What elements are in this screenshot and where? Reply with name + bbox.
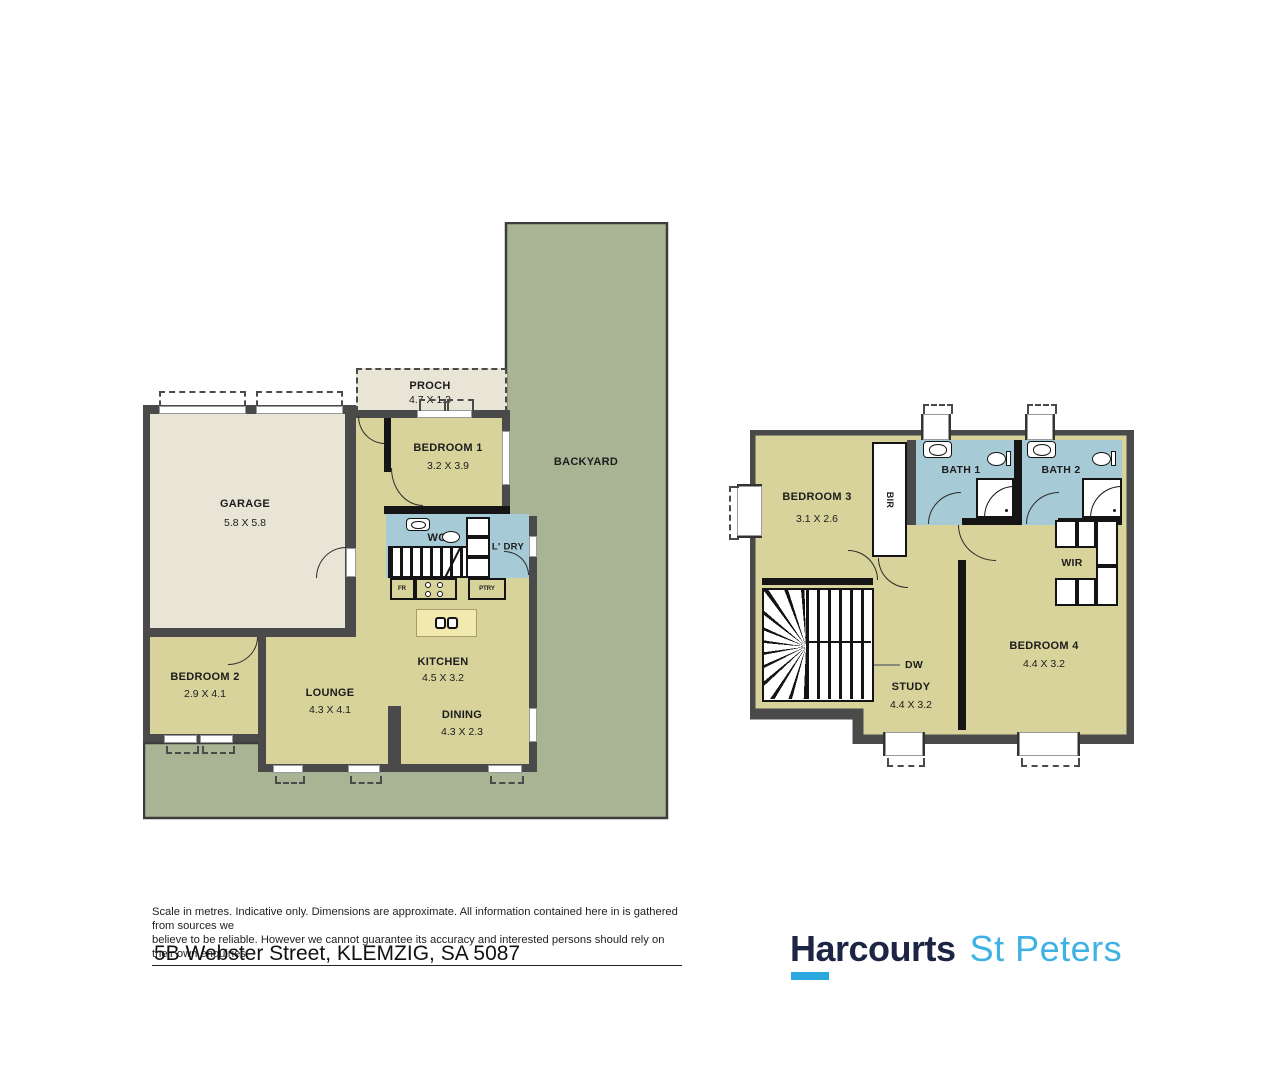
harcourts-logo: HarcourtsSt Peters	[790, 928, 1122, 982]
window-marker	[202, 746, 235, 754]
bir-label: BIR	[885, 492, 895, 508]
wardrobe-shelf	[1096, 520, 1118, 566]
window	[348, 765, 380, 773]
toilet-icon	[1092, 452, 1111, 466]
lounge-dims: 4.3 X 4.1	[309, 704, 351, 716]
basin-icon	[406, 518, 430, 531]
wall	[962, 518, 1022, 525]
wardrobe-shelf	[1077, 520, 1096, 548]
window-marker	[419, 399, 446, 411]
toilet-icon	[987, 452, 1006, 466]
disclaimer-line1: Scale in metres. Indicative only. Dimens…	[152, 905, 682, 933]
driveway-marker	[256, 391, 343, 406]
bath1-label: BATH 1	[942, 464, 981, 476]
window-marker	[275, 776, 305, 784]
staircase	[388, 546, 468, 578]
property-address: 5B Webster Street, KLEMZIG, SA 5087	[154, 942, 520, 966]
stair-treads	[806, 643, 871, 699]
backyard-label: BACKYARD	[554, 456, 618, 468]
window	[1017, 732, 1080, 756]
dw-label: DW	[905, 659, 923, 671]
bedroom4-label: BEDROOM 4	[1009, 640, 1078, 652]
window-marker	[1027, 404, 1057, 414]
window	[273, 765, 303, 773]
bath2-label: BATH 2	[1042, 464, 1081, 476]
wall	[388, 706, 401, 772]
lounge-label: LOUNGE	[306, 687, 355, 699]
logo-underline-bar	[791, 972, 829, 980]
bedroom3-label: BEDROOM 3	[782, 491, 851, 503]
shower-icon	[1082, 478, 1122, 518]
window-marker	[350, 776, 382, 784]
upper-floor-plan: BEDROOM 3 3.1 X 2.6 BIR BATH 1 BATH 2	[700, 380, 1160, 780]
window	[1025, 414, 1055, 440]
window-marker	[447, 399, 474, 411]
bedroom3-dims: 3.1 X 2.6	[796, 513, 838, 525]
stove-burner	[425, 591, 431, 597]
dining-label: DINING	[442, 709, 482, 721]
window	[883, 732, 925, 756]
toilet-tank	[1006, 451, 1011, 466]
dining-dims: 4.3 X 2.3	[441, 726, 483, 738]
wall	[384, 506, 510, 514]
window-marker	[490, 776, 524, 784]
stove-burner	[425, 582, 431, 588]
bedroom2-label: BEDROOM 2	[170, 671, 239, 683]
window	[488, 765, 522, 773]
study-label: STUDY	[892, 681, 931, 693]
garage-door-opening	[256, 406, 343, 414]
laundry-appliance-icon	[466, 537, 490, 557]
stair-treads	[806, 590, 871, 643]
kitchen-label: KITCHEN	[418, 656, 469, 668]
wall	[907, 440, 916, 525]
stove-burner	[437, 591, 443, 597]
stove-burner	[437, 582, 443, 588]
window	[737, 484, 762, 538]
porch-label: PROCH	[409, 380, 450, 392]
wardrobe-shelf	[1077, 578, 1096, 606]
garage-dims: 5.8 X 5.8	[224, 517, 266, 529]
brand-name: Harcourts	[790, 928, 956, 969]
bedroom1-label: BEDROOM 1	[413, 442, 482, 454]
window	[529, 708, 537, 742]
garage-internal-door	[346, 548, 356, 577]
garage-label: GARAGE	[220, 498, 270, 510]
basin-icon	[1027, 441, 1056, 458]
window-marker	[166, 746, 199, 754]
window	[417, 410, 472, 418]
bedroom2-dims: 2.9 X 4.1	[184, 688, 226, 700]
stair-winder-fan	[764, 590, 806, 699]
wall	[958, 560, 966, 730]
window	[921, 414, 951, 440]
laundry-appliance-icon	[466, 517, 490, 537]
window	[164, 735, 197, 743]
wardrobe-shelf	[1055, 578, 1077, 606]
staircase	[762, 588, 874, 702]
study-dims: 4.4 X 3.2	[890, 699, 932, 711]
floorplan-page: BACKYARD PROCH 4.7 X 1.3 GARAGE 5.8 X 5.…	[0, 0, 1268, 1080]
wir-label: WIR	[1061, 557, 1082, 569]
brand-office: St Peters	[970, 928, 1123, 969]
toilet-tank	[1111, 451, 1116, 466]
window	[502, 431, 510, 485]
bedroom1-dims: 3.2 X 3.9	[427, 460, 469, 472]
wardrobe-shelf	[1096, 566, 1118, 606]
window-marker	[729, 486, 739, 540]
sink-icon	[447, 617, 458, 629]
kitchen-dims: 4.5 X 3.2	[422, 672, 464, 684]
window-marker	[923, 404, 953, 414]
back-door-opening	[529, 536, 537, 557]
laundry-appliance-icon	[466, 557, 490, 578]
shower-icon	[976, 478, 1014, 518]
pantry-label: PTRY	[479, 586, 495, 592]
basin-icon	[923, 441, 952, 458]
window	[200, 735, 233, 743]
fridge-label: FR	[398, 586, 406, 592]
ground-floor-plan: BACKYARD PROCH 4.7 X 1.3 GARAGE 5.8 X 5.…	[0, 0, 700, 850]
stove-box	[415, 578, 457, 600]
toilet-icon	[442, 531, 460, 543]
bedroom4-dims: 4.4 X 3.2	[1023, 658, 1065, 670]
window-marker	[887, 758, 925, 767]
garage-door-opening	[159, 406, 246, 414]
wardrobe-shelf	[1055, 520, 1077, 548]
wall	[1014, 440, 1022, 525]
window-marker	[1021, 758, 1080, 767]
sink-icon	[435, 617, 446, 629]
wall	[384, 418, 391, 472]
driveway-marker	[159, 391, 246, 406]
